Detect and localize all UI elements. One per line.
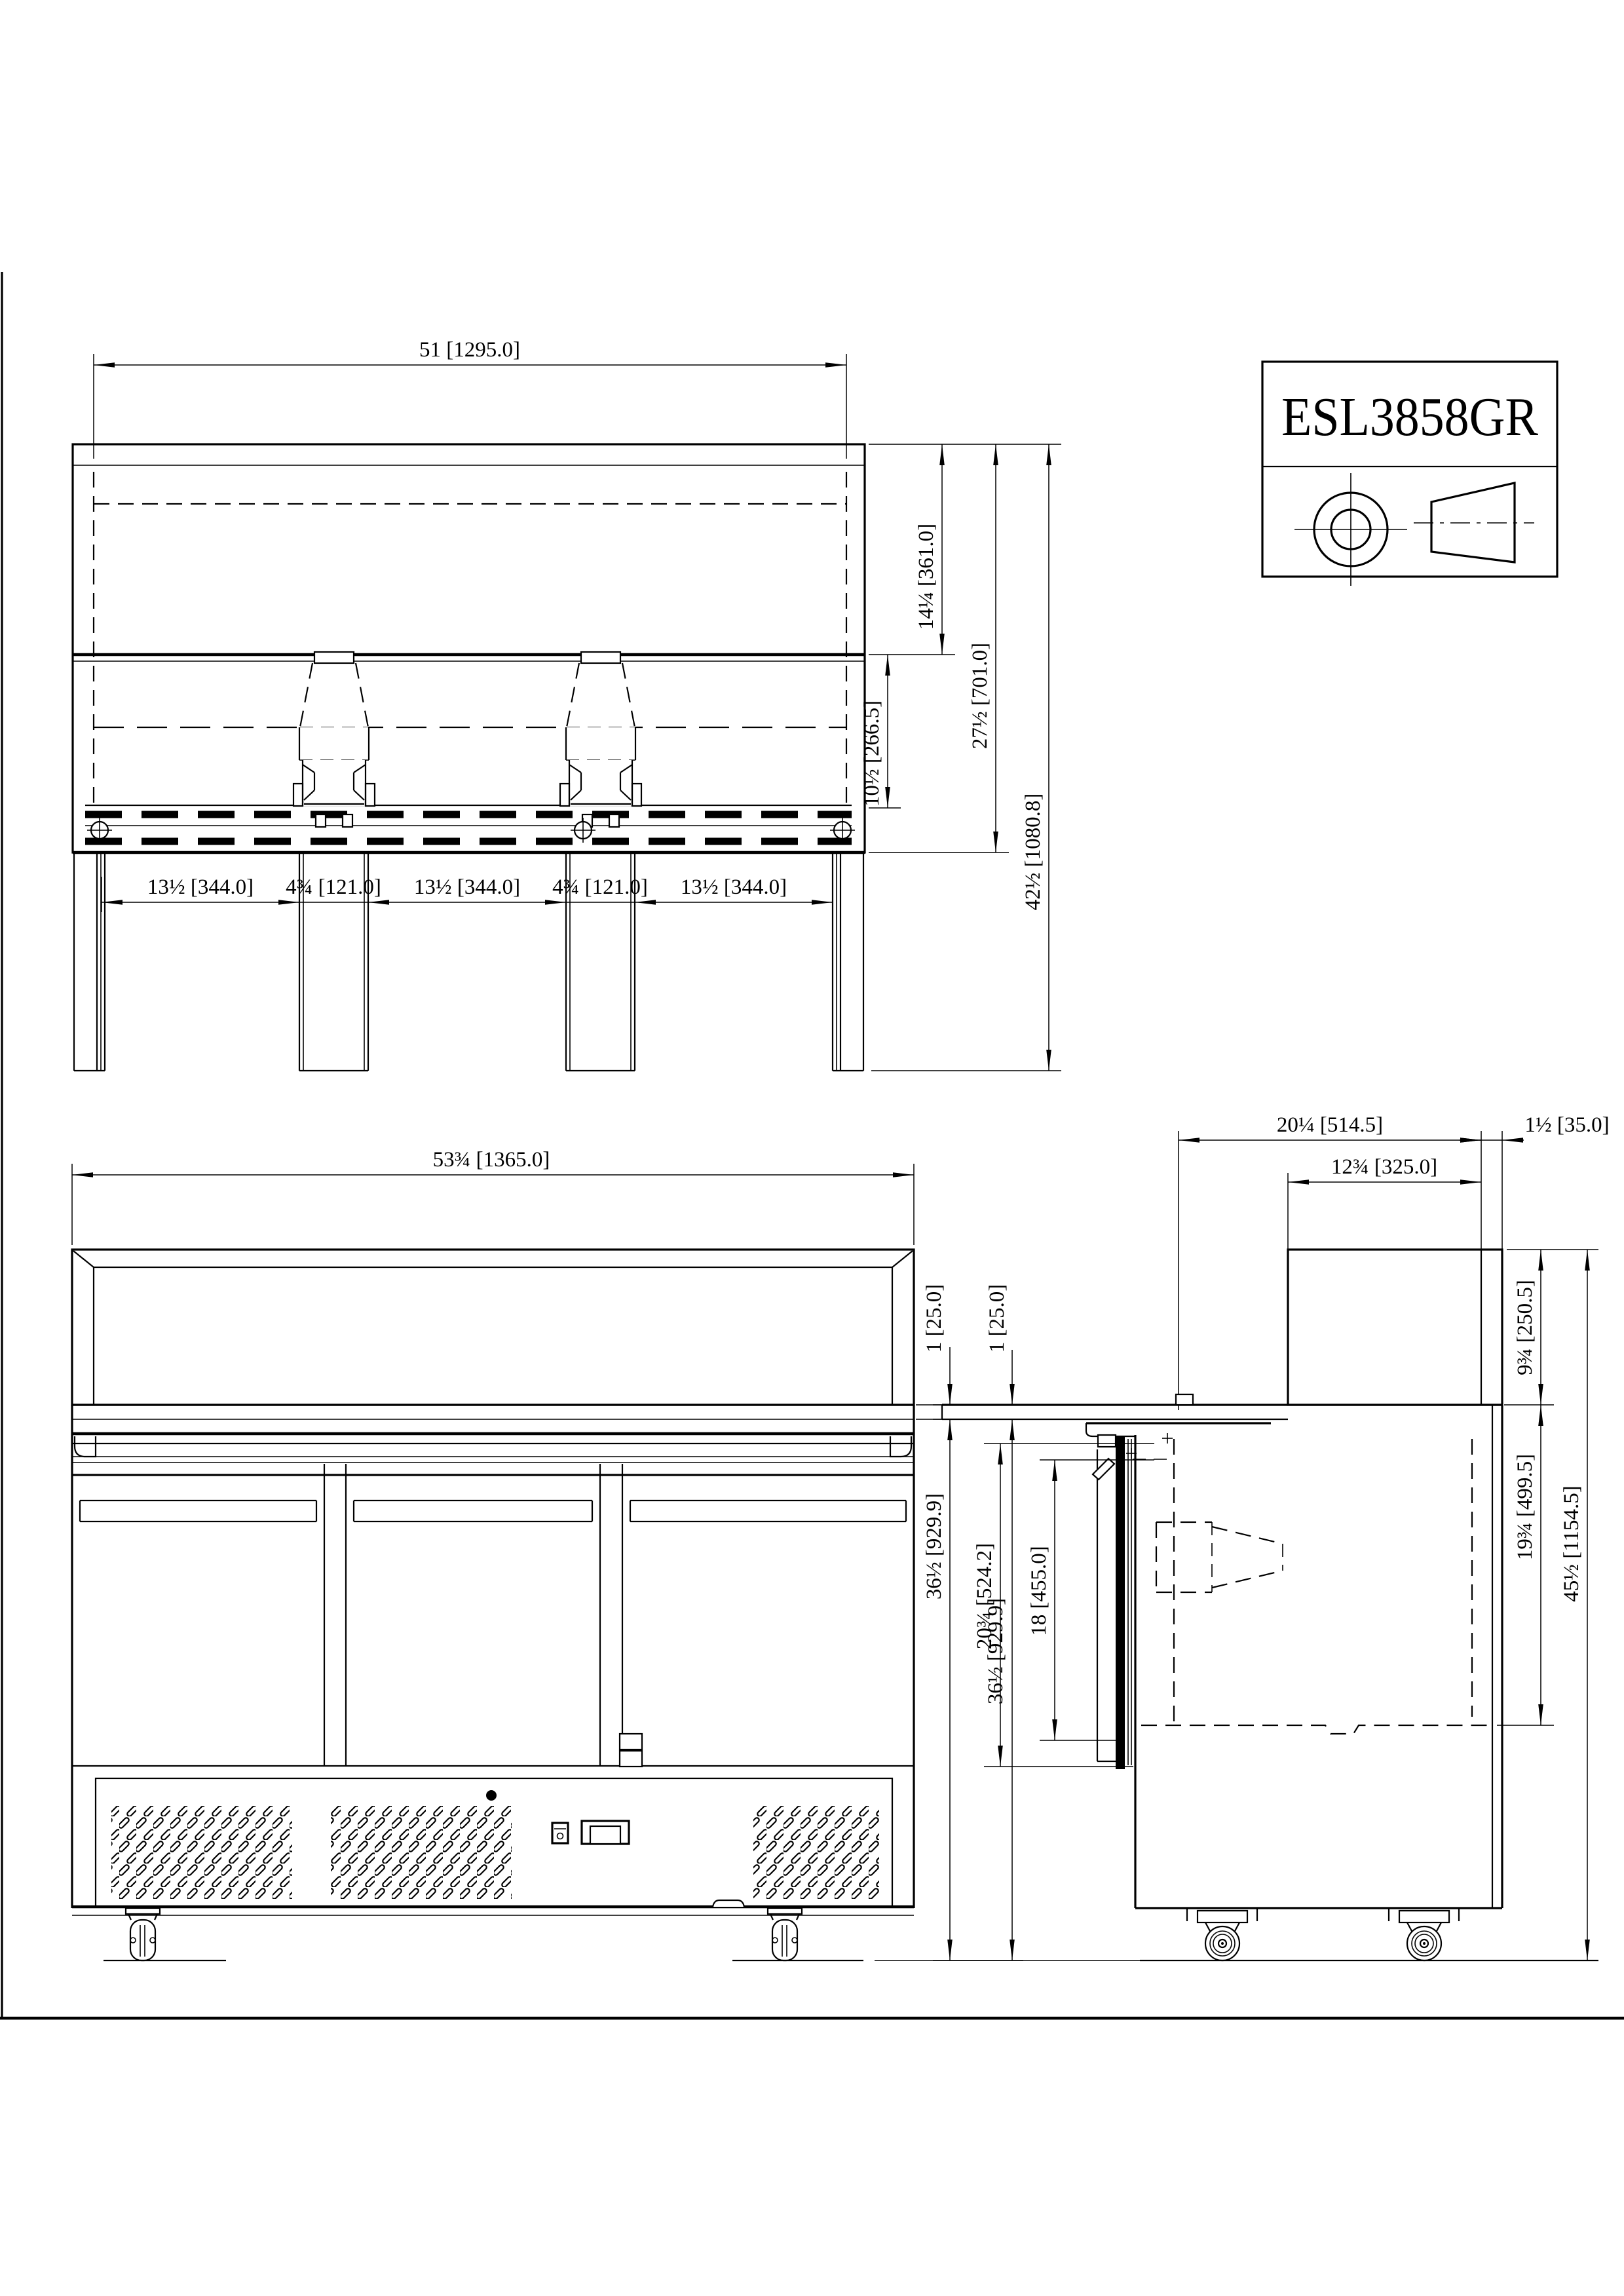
door-handle [1093, 1459, 1114, 1480]
title-block: ESL3858GR [1262, 362, 1557, 586]
suction-nozzle-right [560, 652, 641, 827]
projection-symbol-icon [1294, 473, 1534, 586]
suction-nozzle-left [293, 652, 375, 827]
indicator-dot [486, 1790, 497, 1801]
sheet-frame [0, 272, 1624, 2018]
dim-counter-thickness: 1 [25.0] [985, 1284, 1009, 1352]
vent-grille-right [753, 1806, 879, 1899]
hinge-plate [620, 1751, 642, 1767]
dim-door-opening: 20¾ [524.2] [973, 1543, 996, 1649]
side-view-right-dimensions: 9¾ [250.5] 19¾ [499.5] 45½ [1154.5] [1497, 1250, 1598, 1961]
side-door [1093, 1433, 1173, 1908]
model-number: ESL3858GR [1281, 387, 1538, 448]
glass-riser [1288, 1250, 1502, 1405]
dim-back-wall: 1½ [35.0] [1524, 1113, 1609, 1137]
dim-inner-opening: 18 [455.0] [1027, 1546, 1051, 1636]
side-view-top-dimensions: 20¼ [514.5] 1½ [35.0] 12¾ [325.0] [1179, 1113, 1610, 1410]
doors [72, 1464, 914, 1767]
vent-grille-left [111, 1806, 292, 1899]
dim-glass-depth: 14¼ [361.0] [915, 524, 938, 630]
dim-side-counter-height: 36½ [929.9] [922, 1493, 946, 1599]
pan-rail-step [1176, 1394, 1193, 1405]
dim-spacing-3: 13½ [344.0] [414, 875, 520, 899]
dim-hood-depth: 27½ [701.0] [968, 643, 992, 749]
dim-nozzle-depth: 10½ [266.5] [860, 700, 884, 807]
top-view: 51 [1295.0] 10½ [266.5] 14¼ [361.0] 27½ … [73, 338, 1061, 1071]
vent-grille-center [331, 1806, 512, 1899]
dim-top-depth: 20¼ [514.5] [1277, 1113, 1383, 1137]
dim-spacing-2: 4¾ [121.0] [286, 875, 381, 899]
dim-overall-depth: 42½ [1080.8] [1021, 794, 1045, 911]
dim-glass-box-height: 9¾ [250.5] [1513, 1280, 1537, 1375]
caster-front-left [126, 1908, 160, 1961]
caster-side-front [1198, 1911, 1247, 1961]
side-view: 20¼ [514.5] 1½ [35.0] 12¾ [325.0] [922, 1113, 1610, 1961]
hidden-interior [1133, 1439, 1494, 1734]
dim-side-counter-thickness: 1 [25.0] [922, 1284, 946, 1352]
dim-spacing-1: 13½ [344.0] [147, 875, 254, 899]
caster-side-rear [1399, 1911, 1449, 1961]
hinge-plate [620, 1734, 642, 1750]
dim-front-width: 53¾ [1365.0] [433, 1148, 550, 1172]
dim-overall-height: 45½ [1154.5] [1560, 1485, 1583, 1602]
dim-interior-depth: 19¾ [499.5] [1513, 1454, 1537, 1560]
dim-top-width: 51 [1295.0] [419, 338, 520, 362]
dim-spacing-4: 4¾ [121.0] [552, 875, 648, 899]
front-view: 53¾ [1365.0] 1 [25.0] 36½ [929.9] [72, 1148, 1023, 1961]
caster-front-right [768, 1908, 802, 1961]
dim-glass-box-depth: 12¾ [325.0] [1331, 1155, 1437, 1179]
hood-outline [73, 444, 865, 852]
glass-display [72, 1250, 914, 1405]
drawing-sheet: ESL3858GR [0, 0, 1624, 2296]
dim-spacing-5: 13½ [344.0] [681, 875, 787, 899]
